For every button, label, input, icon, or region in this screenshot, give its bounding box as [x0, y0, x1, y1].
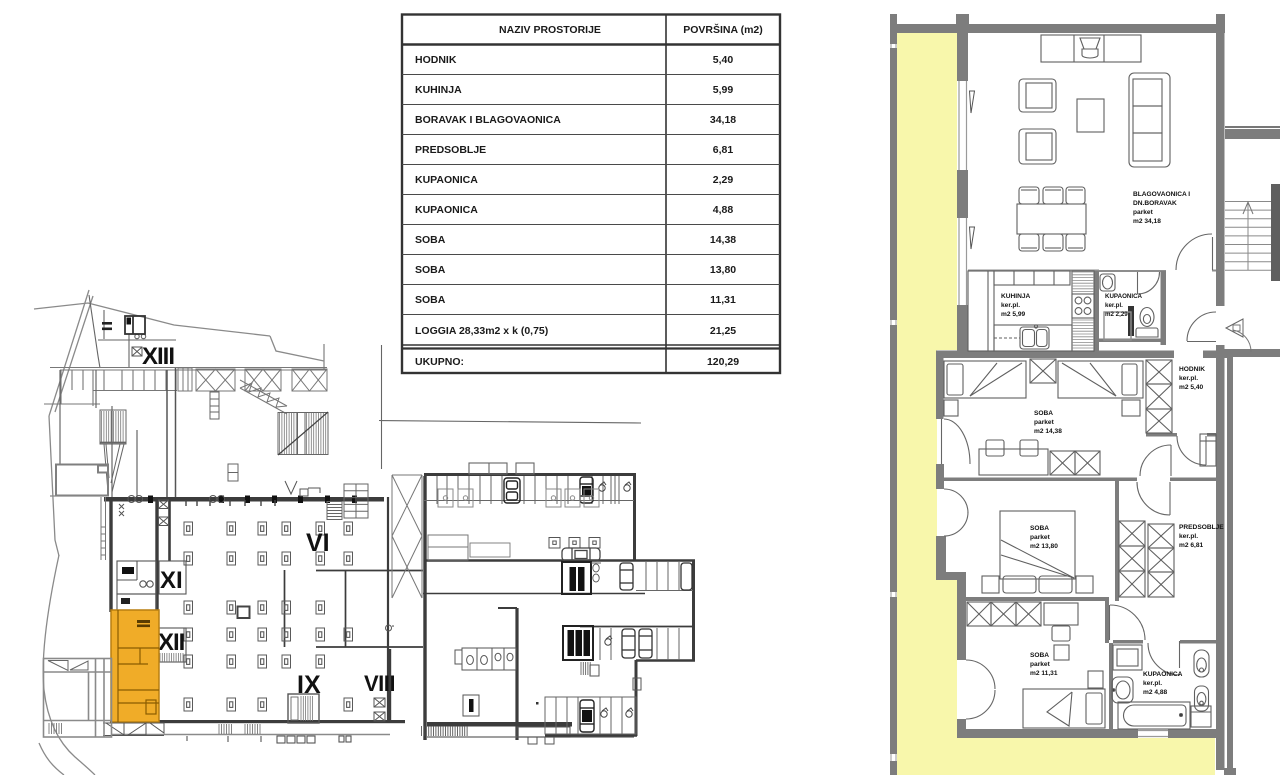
svg-text:XII: XII — [158, 629, 185, 656]
svg-text:14,38: 14,38 — [710, 234, 736, 246]
svg-text:KUHINJA: KUHINJA — [1001, 293, 1031, 300]
svg-text:SOBA: SOBA — [1030, 652, 1049, 659]
svg-text:parket: parket — [1034, 419, 1055, 426]
svg-text:34,18: 34,18 — [710, 114, 736, 126]
svg-text:NAZIV PROSTORIJE: NAZIV PROSTORIJE — [499, 24, 601, 36]
svg-text:m2 14,38: m2 14,38 — [1034, 428, 1062, 435]
svg-text:6,81: 6,81 — [713, 144, 734, 156]
svg-text:ker.pl.: ker.pl. — [1105, 302, 1123, 309]
svg-text:BLAGOVAONICA I: BLAGOVAONICA I — [1133, 191, 1190, 198]
svg-text:KUPAONICA: KUPAONICA — [415, 204, 478, 216]
svg-text:m2 13,80: m2 13,80 — [1030, 543, 1058, 550]
svg-text:4,88: 4,88 — [713, 204, 734, 216]
svg-text:KUPAONICA: KUPAONICA — [1105, 293, 1143, 300]
svg-text:21,25: 21,25 — [710, 325, 736, 337]
svg-text:BORAVAK I BLAGOVAONICA: BORAVAK I BLAGOVAONICA — [415, 114, 561, 126]
svg-text:KUPAONICA: KUPAONICA — [1143, 671, 1183, 678]
svg-text:m2 5,99: m2 5,99 — [1001, 311, 1026, 318]
svg-text:HODNIK: HODNIK — [415, 54, 457, 66]
svg-text:SOBA: SOBA — [415, 264, 446, 276]
svg-text:parket: parket — [1030, 661, 1051, 668]
svg-text:2,29: 2,29 — [713, 174, 734, 186]
svg-text:XI: XI — [160, 567, 183, 594]
svg-text:UKUPNO:: UKUPNO: — [415, 356, 464, 368]
svg-text:ker.pl.: ker.pl. — [1179, 533, 1198, 540]
svg-text:m2 2,29: m2 2,29 — [1105, 311, 1128, 318]
svg-text:parket: parket — [1030, 534, 1051, 541]
svg-text:IX: IX — [297, 671, 321, 699]
svg-text:ker.pl.: ker.pl. — [1179, 375, 1198, 382]
svg-text:13,80: 13,80 — [710, 264, 736, 276]
svg-text:120,29: 120,29 — [707, 356, 739, 368]
svg-text:SOBA: SOBA — [1030, 525, 1049, 532]
svg-text:LOGGIA 28,33m2 x k (0,75): LOGGIA 28,33m2 x k (0,75) — [415, 325, 548, 337]
svg-text:m2 5,40: m2 5,40 — [1179, 384, 1204, 391]
svg-text:SOBA: SOBA — [415, 294, 446, 306]
svg-text:SOBA: SOBA — [415, 234, 446, 246]
svg-text:POVRŠINA (m2): POVRŠINA (m2) — [683, 23, 763, 36]
svg-text:PREDSOBLJE: PREDSOBLJE — [1179, 524, 1224, 531]
svg-text:XIII: XIII — [142, 343, 174, 370]
svg-text:parket: parket — [1133, 209, 1154, 216]
svg-text:m2 11,31: m2 11,31 — [1030, 670, 1058, 677]
svg-text:11,31: 11,31 — [710, 294, 736, 306]
svg-text:KUPAONICA: KUPAONICA — [415, 174, 478, 186]
svg-text:m2 34,18: m2 34,18 — [1133, 218, 1161, 225]
svg-text:VI: VI — [306, 529, 330, 557]
svg-text:KUHINJA: KUHINJA — [415, 84, 462, 96]
svg-text:m2 6,81: m2 6,81 — [1179, 542, 1204, 549]
svg-text:5,40: 5,40 — [713, 54, 734, 66]
svg-text:m2 4,88: m2 4,88 — [1143, 689, 1168, 696]
svg-text:5,99: 5,99 — [713, 84, 734, 96]
svg-text:PREDSOBLJE: PREDSOBLJE — [415, 144, 486, 156]
svg-text:ker.pl.: ker.pl. — [1001, 302, 1020, 309]
svg-text:SOBA: SOBA — [1034, 410, 1053, 417]
svg-text:DN.BORAVAK: DN.BORAVAK — [1133, 200, 1177, 207]
svg-text:ker.pl.: ker.pl. — [1143, 680, 1162, 687]
svg-text:HODNIK: HODNIK — [1179, 366, 1205, 373]
